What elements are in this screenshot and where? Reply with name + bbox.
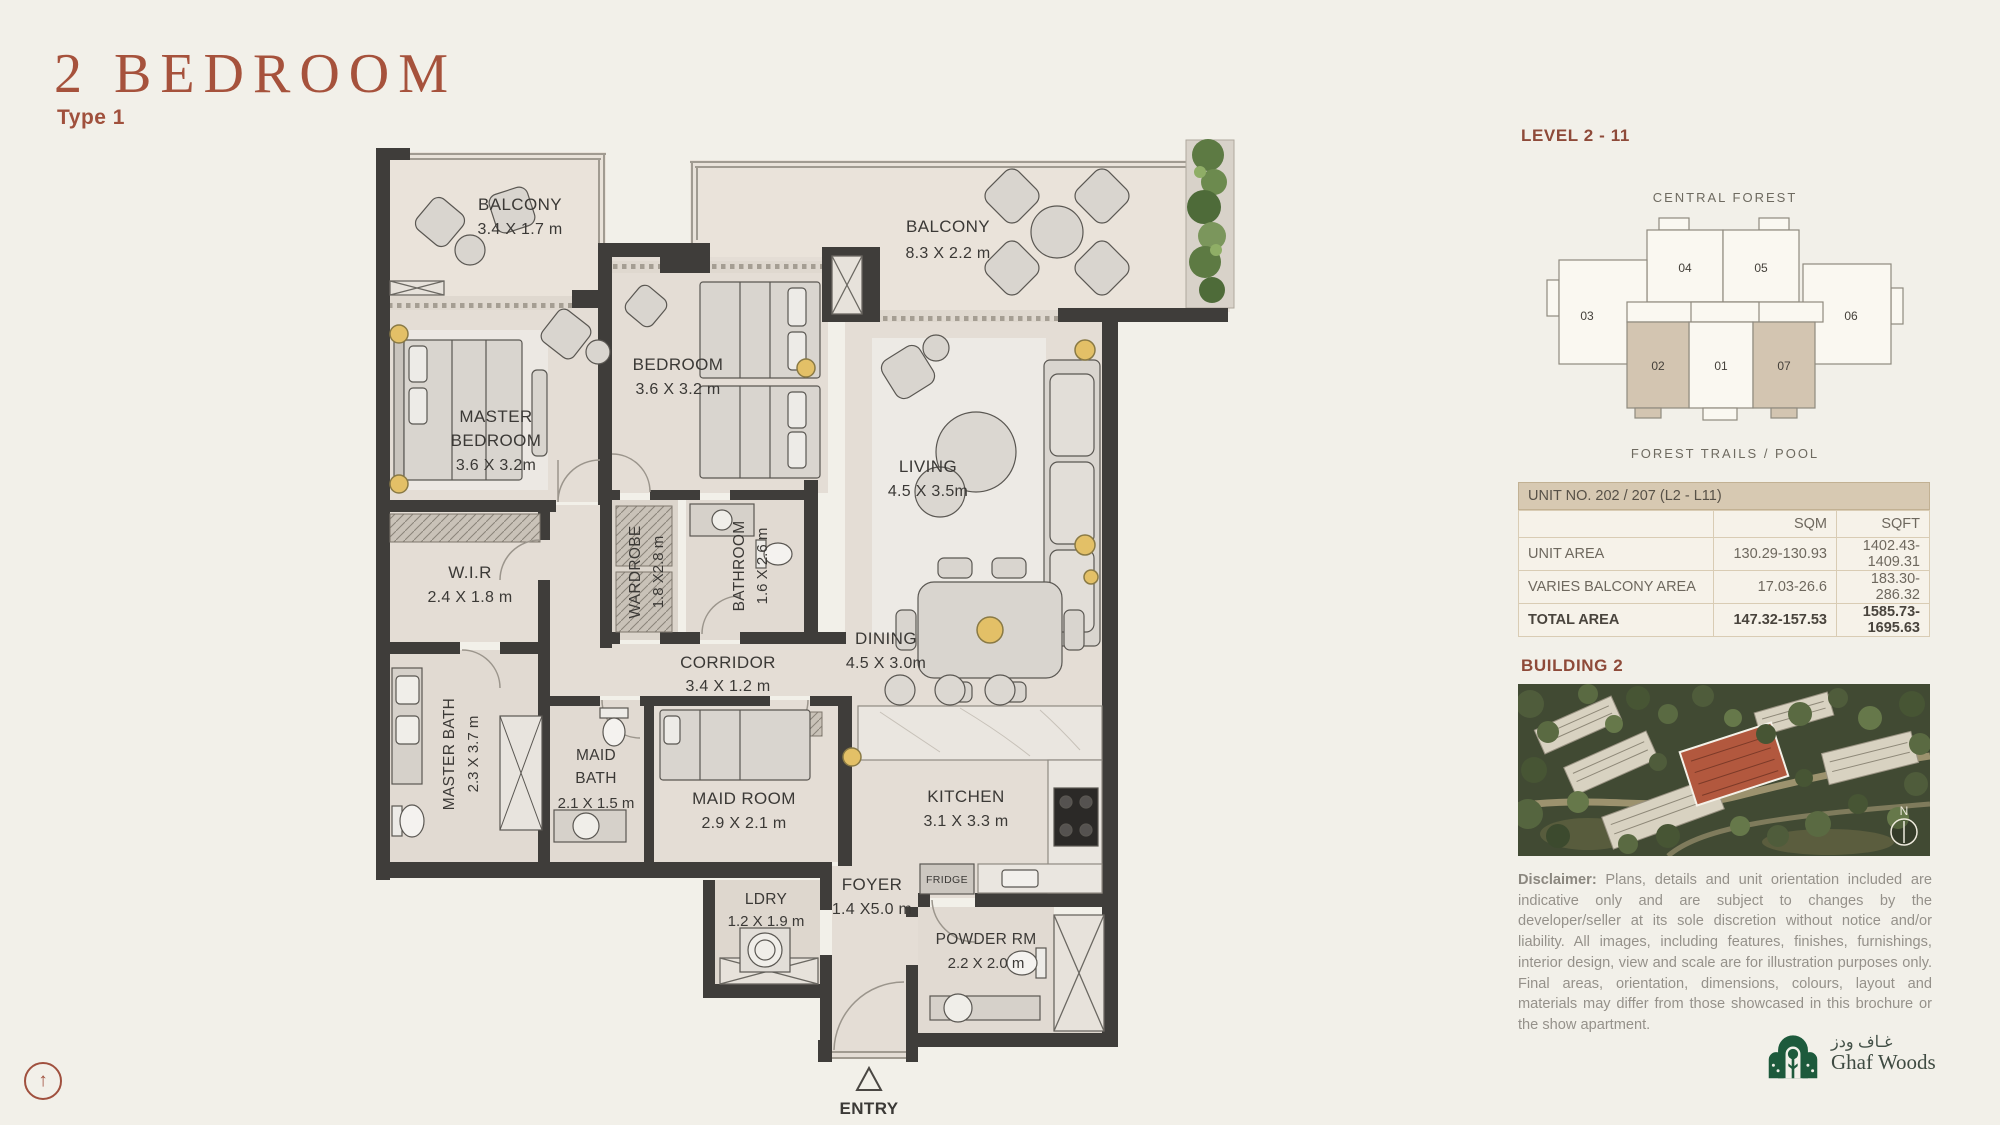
svg-text:1.2 X 1.9 m: 1.2 X 1.9 m <box>728 913 805 930</box>
table-row-total: TOTAL AREA 147.32-157.53 1585.73-1695.63 <box>1519 604 1930 637</box>
col-header-sqm: SQM <box>1714 511 1837 538</box>
unit-02: 02 <box>1651 359 1665 373</box>
svg-text:3.4 X 1.2 m: 3.4 X 1.2 m <box>685 678 770 695</box>
brochure-page: 2 BEDROOM Type 1 <box>0 0 2000 1125</box>
ghaf-woods-emblem-icon <box>1765 1026 1821 1082</box>
col-header-sqft: SQFT <box>1837 511 1930 538</box>
compass-n: N <box>1900 804 1909 818</box>
label-maid-bath: MAID <box>576 747 616 764</box>
label-master-bath: MASTER BATH <box>441 698 458 810</box>
unit-06: 06 <box>1844 309 1858 323</box>
svg-text:1.6 X 2.6 m: 1.6 X 2.6 m <box>754 528 771 605</box>
label-wardrobe: WARDROBE <box>627 525 644 618</box>
page-subtitle: Type 1 <box>57 106 125 130</box>
unit-04: 04 <box>1678 261 1692 275</box>
disclaimer-label: Disclaimer: <box>1518 872 1597 888</box>
table-row: VARIES BALCONY AREA 17.03-26.6 183.30-28… <box>1519 571 1930 604</box>
label-kitchen: KITCHEN <box>927 787 1004 806</box>
svg-text:3.1 X 3.3 m: 3.1 X 3.3 m <box>923 813 1008 830</box>
label-foyer: FOYER <box>842 875 903 894</box>
building-render-image: N <box>1518 684 1930 856</box>
svg-text:BATH: BATH <box>575 770 616 787</box>
hedge-planter <box>1186 139 1234 308</box>
svg-text:4.5 X 3.5m: 4.5 X 3.5m <box>888 483 968 500</box>
entry-marker: ENTRY <box>832 1052 906 1118</box>
building-heading: BUILDING 2 <box>1521 656 1623 676</box>
unit-03: 03 <box>1580 309 1594 323</box>
floor-plan: BALCONY 3.4 X 1.7 m BALCONY 8.3 X 2.2 m … <box>365 120 1245 1120</box>
area-table-header: UNIT NO. 202 / 207 (L2 - L11) <box>1518 482 1930 510</box>
level-heading: LEVEL 2 - 11 <box>1521 126 1630 146</box>
label-powder-rm: POWDER RM <box>936 931 1037 948</box>
logo-english-text: Ghaf Woods <box>1831 1051 1936 1074</box>
label-fridge: FRIDGE <box>926 874 968 886</box>
unit-07: 07 <box>1777 359 1791 373</box>
svg-text:1.8 X2.8 m: 1.8 X2.8 m <box>650 536 667 609</box>
svg-text:3.4 X 1.7 m: 3.4 X 1.7 m <box>477 221 562 238</box>
label-dining: DINING <box>855 629 917 648</box>
up-arrow-icon: ↑ <box>38 1070 48 1092</box>
label-bedroom: BEDROOM <box>633 355 724 374</box>
svg-text:2.1 X 1.5 m: 2.1 X 1.5 m <box>558 795 635 812</box>
key-plan-top-label: CENTRAL FOREST <box>1653 190 1798 205</box>
label-living: LIVING <box>899 457 957 476</box>
svg-text:3.6 X 3.2 m: 3.6 X 3.2 m <box>635 381 720 398</box>
label-corridor: CORRIDOR <box>680 653 776 672</box>
area-table: UNIT NO. 202 / 207 (L2 - L11) SQM SQFT U… <box>1518 482 1930 637</box>
disclaimer-text: Disclaimer: Plans, details and unit orie… <box>1518 870 1932 1036</box>
svg-text:2.2 X 2.0 m: 2.2 X 2.0 m <box>948 955 1025 972</box>
unit-01: 01 <box>1714 359 1728 373</box>
back-to-top-button[interactable]: ↑ <box>24 1062 62 1100</box>
table-row: UNIT AREA 130.29-130.93 1402.43-1409.31 <box>1519 538 1930 571</box>
label-maid-room: MAID ROOM <box>692 789 796 808</box>
label-wir: W.I.R <box>448 563 492 582</box>
label-ldry: LDRY <box>745 891 787 908</box>
key-plan: CENTRAL FOREST 03 04 05 06 02 01 07 FORE… <box>1535 168 1915 468</box>
label-balcony-tr: BALCONY <box>906 217 990 236</box>
key-plan-bottom-label: FOREST TRAILS / POOL <box>1631 446 1819 461</box>
svg-text:2.9 X 2.1 m: 2.9 X 2.1 m <box>701 815 786 832</box>
svg-text:4.5 X 3.0m: 4.5 X 3.0m <box>846 655 926 672</box>
label-entry: ENTRY <box>840 1099 899 1118</box>
ghaf-woods-logo: غـاف ودز Ghaf Woods <box>1765 1026 1936 1082</box>
label-master-bedroom: MASTER <box>459 407 532 426</box>
page-title: 2 BEDROOM <box>54 42 457 106</box>
svg-text:BEDROOM: BEDROOM <box>451 431 542 450</box>
svg-text:3.6 X 3.2m: 3.6 X 3.2m <box>456 457 536 474</box>
svg-text:1.4 X5.0 m: 1.4 X5.0 m <box>832 901 912 918</box>
svg-text:2.3 X 3.7 m: 2.3 X 3.7 m <box>465 716 482 793</box>
logo-arabic-text: غـاف ودز <box>1831 1034 1936 1052</box>
table-row: SQM SQFT <box>1519 511 1930 538</box>
svg-text:8.3 X 2.2 m: 8.3 X 2.2 m <box>905 245 990 262</box>
label-balcony-tl: BALCONY <box>478 195 562 214</box>
label-bathroom: BATHROOM <box>731 521 748 612</box>
unit-05: 05 <box>1754 261 1768 275</box>
svg-text:2.4 X 1.8 m: 2.4 X 1.8 m <box>427 589 512 606</box>
